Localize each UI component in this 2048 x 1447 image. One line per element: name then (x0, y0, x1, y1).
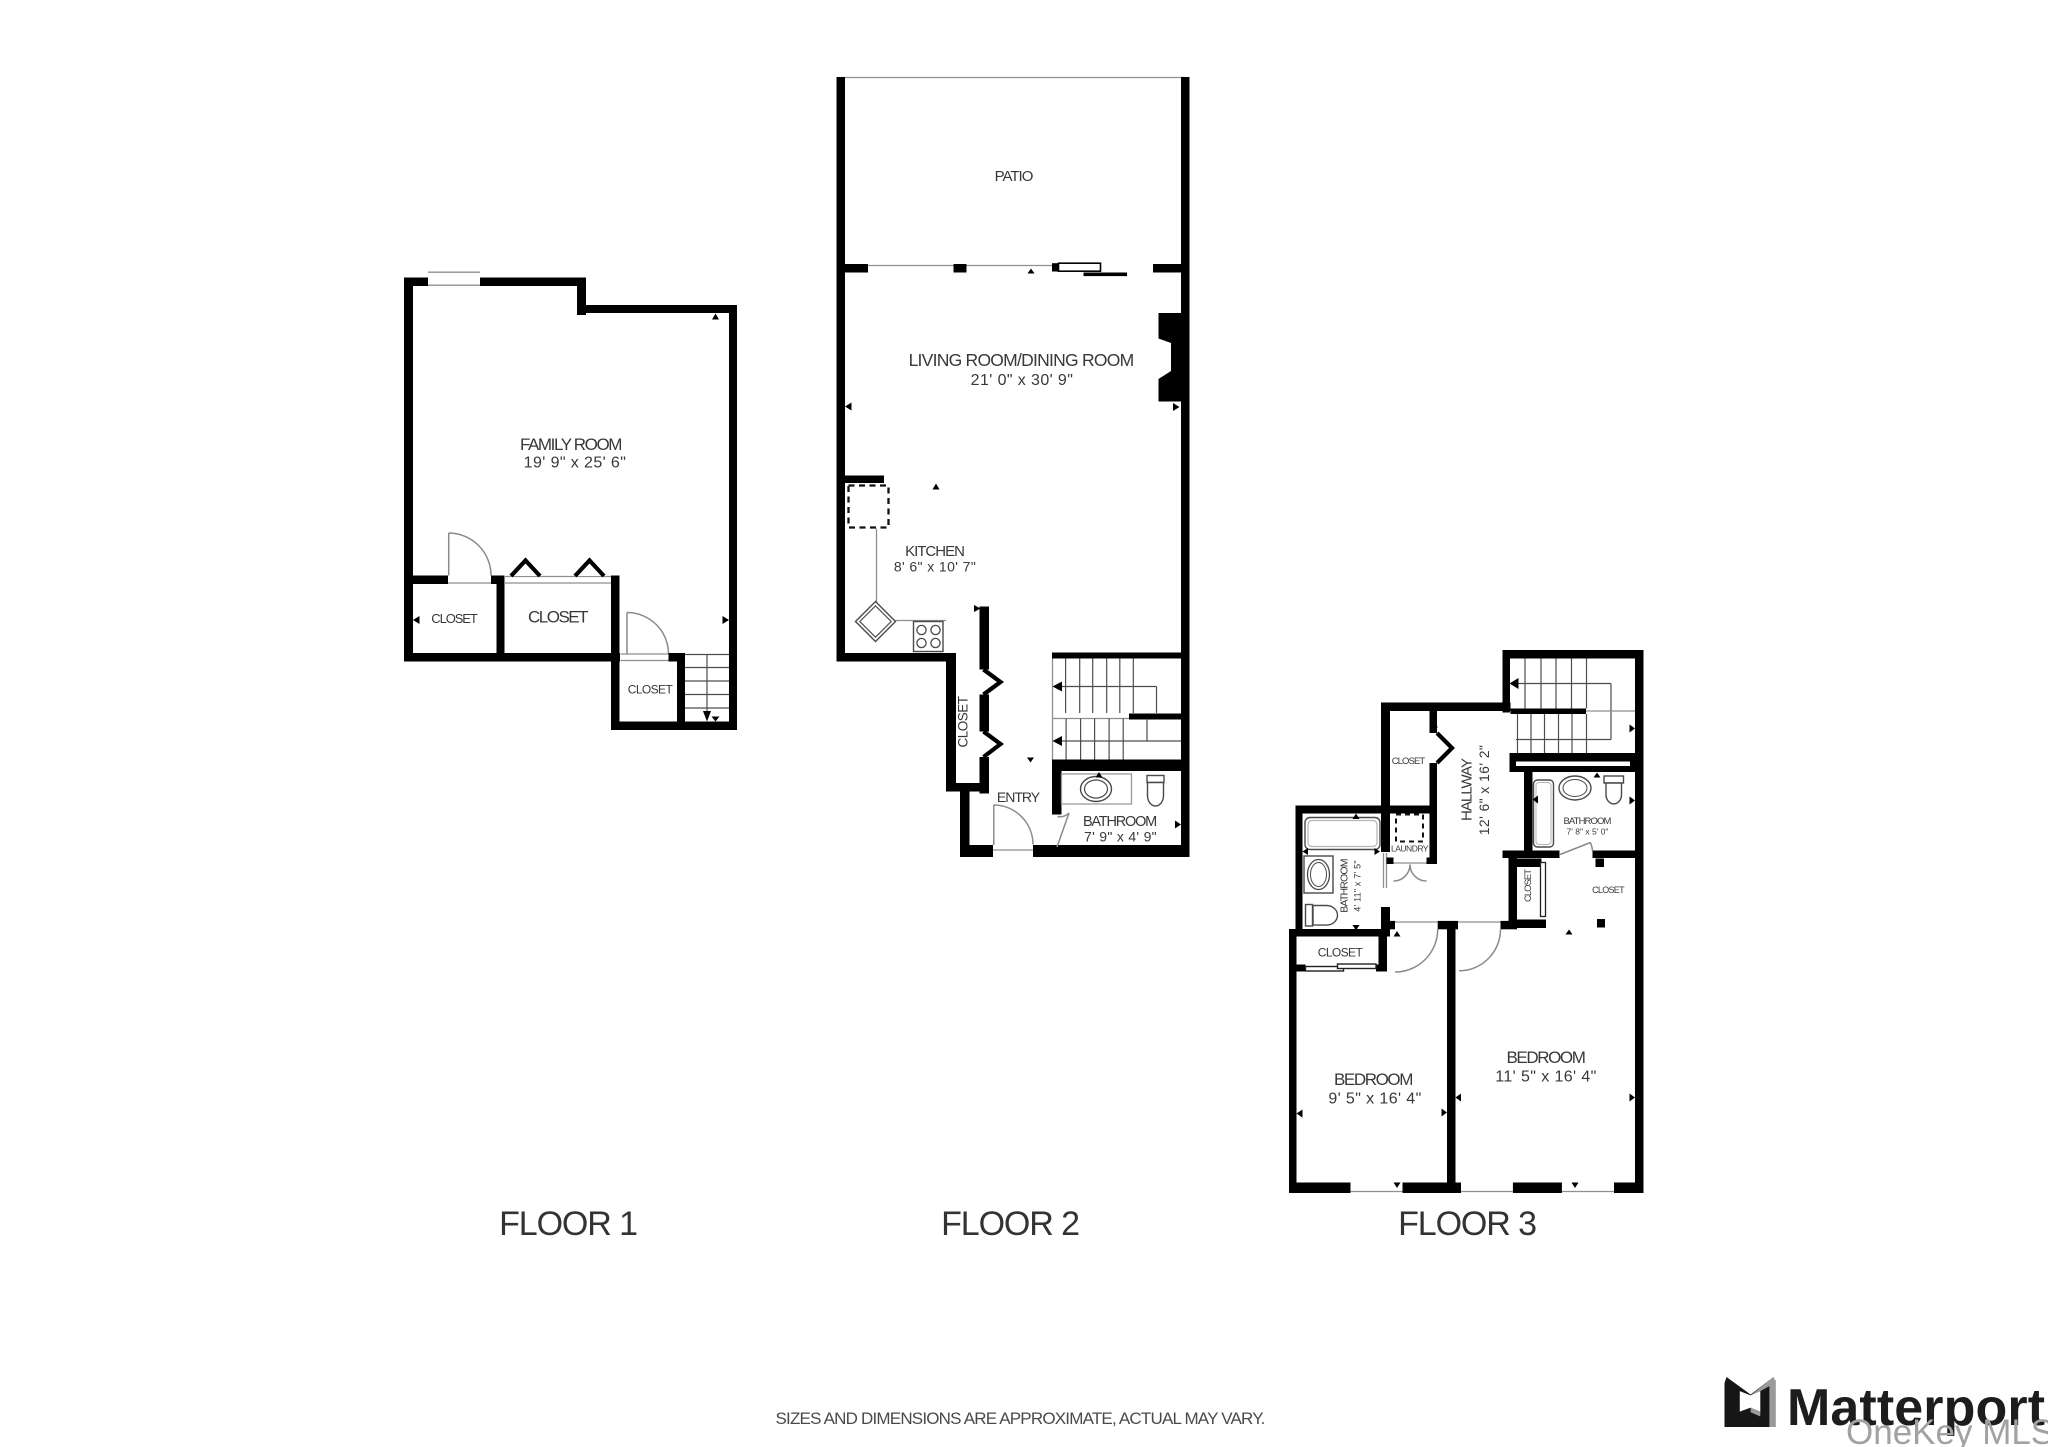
svg-text:BEDROOM: BEDROOM (1506, 1048, 1584, 1067)
svg-text:SIZES AND DIMENSIONS ARE APPRO: SIZES AND DIMENSIONS ARE APPROXIMATE, AC… (776, 1409, 1265, 1428)
svg-text:FAMILY ROOM: FAMILY ROOM (520, 435, 621, 454)
svg-text:FLOOR 3: FLOOR 3 (1398, 1205, 1536, 1243)
svg-text:PATIO: PATIO (995, 168, 1033, 185)
svg-text:CLOSET: CLOSET (1318, 946, 1364, 960)
svg-text:ENTRY: ENTRY (997, 789, 1041, 805)
svg-text:CLOSET: CLOSET (431, 611, 478, 626)
svg-text:CLOSET: CLOSET (628, 683, 674, 697)
svg-text:12' 6" x 16' 2": 12' 6" x 16' 2" (1476, 745, 1492, 836)
svg-text:CLOSET: CLOSET (1392, 756, 1426, 767)
svg-text:4' 11" x 7' 5": 4' 11" x 7' 5" (1353, 860, 1363, 912)
svg-text:19' 9" x 25' 6": 19' 9" x 25' 6" (524, 455, 627, 472)
svg-text:9' 5" x 16' 4": 9' 5" x 16' 4" (1328, 1091, 1421, 1108)
svg-text:HALLWAY: HALLWAY (1459, 758, 1476, 821)
svg-text:8' 6" x 10' 7": 8' 6" x 10' 7" (894, 559, 976, 575)
svg-text:LAUNDRY: LAUNDRY (1391, 844, 1429, 854)
svg-text:FLOOR 2: FLOOR 2 (941, 1205, 1079, 1243)
svg-text:CLOSET: CLOSET (1523, 869, 1534, 902)
svg-text:KITCHEN: KITCHEN (905, 543, 964, 560)
svg-text:7' 8" x 5' 0": 7' 8" x 5' 0" (1567, 827, 1609, 837)
svg-text:FLOOR 1: FLOOR 1 (499, 1205, 637, 1243)
svg-text:BATHROOM: BATHROOM (1339, 859, 1351, 913)
svg-text:21' 0" x 30' 9": 21' 0" x 30' 9" (971, 372, 1074, 389)
svg-text:BATHROOM: BATHROOM (1564, 816, 1612, 827)
svg-text:CLOSET: CLOSET (528, 608, 588, 627)
svg-text:OneKey MLS: OneKey MLS (1846, 1413, 2048, 1447)
svg-text:BEDROOM: BEDROOM (1334, 1070, 1412, 1089)
svg-text:11' 5" x 16' 4": 11' 5" x 16' 4" (1495, 1069, 1596, 1086)
svg-text:7' 9" x 4' 9": 7' 9" x 4' 9" (1084, 829, 1157, 845)
svg-text:CLOSET: CLOSET (1592, 885, 1625, 895)
svg-text:CLOSET: CLOSET (956, 696, 971, 747)
svg-text:LIVING ROOM/DINING ROOM: LIVING ROOM/DINING ROOM (909, 350, 1134, 370)
